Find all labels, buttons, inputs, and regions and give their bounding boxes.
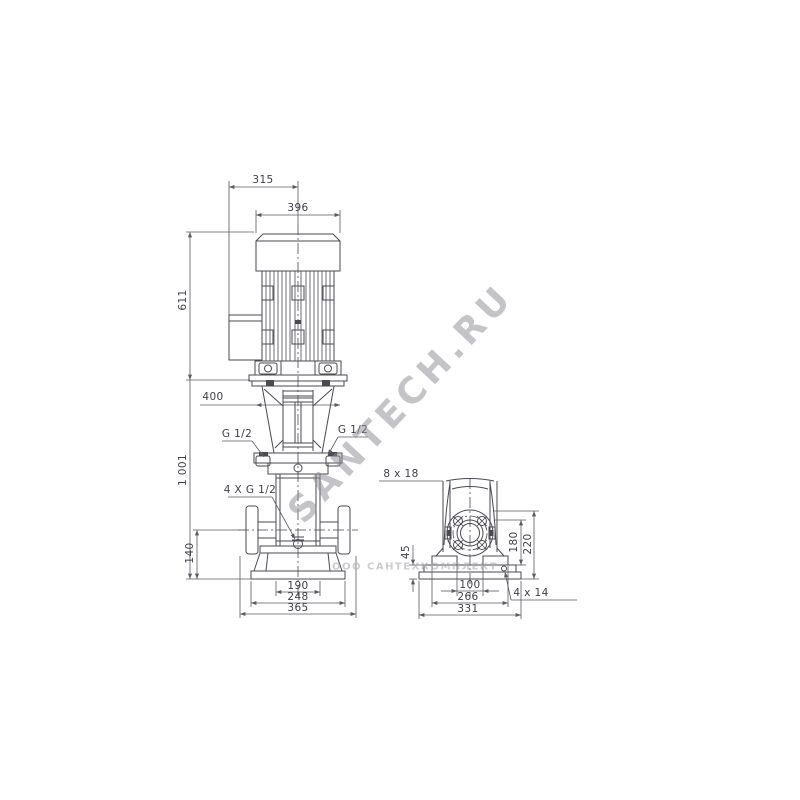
dim-100-label: 100	[459, 579, 480, 591]
dim-365-label: 365	[287, 602, 308, 614]
dim-1001-label: 1 001	[177, 454, 189, 486]
dim-45-label: 45	[400, 545, 412, 559]
pump-dimension-drawing: 315 396 611 1 001 400 G 1/2 G 1/2 4 X G …	[0, 0, 800, 800]
drawing-canvas	[0, 0, 800, 800]
drain-plugs-label: 4 X G 1/2	[224, 484, 277, 496]
dim-396-label: 396	[287, 202, 308, 214]
rating-plate-mark	[295, 320, 301, 324]
dim-331-label: 331	[457, 603, 478, 615]
dim-180-label: 180	[508, 531, 520, 552]
port-left-label: G 1/2	[222, 428, 252, 440]
dim-611-label: 611	[177, 289, 189, 310]
dim-220-label: 220	[522, 533, 534, 554]
dim-140-label: 140	[184, 542, 196, 563]
dim-315-label: 315	[252, 174, 273, 186]
terminal-box	[229, 315, 262, 360]
dim-266-label: 266	[457, 591, 478, 603]
front-view	[229, 224, 358, 598]
base-holes-label: 4 x 14	[513, 587, 548, 599]
port-right-label: G 1/2	[338, 424, 368, 436]
flange-holes-label: 8 x 18	[383, 468, 418, 480]
dim-400-label: 400	[202, 391, 223, 403]
